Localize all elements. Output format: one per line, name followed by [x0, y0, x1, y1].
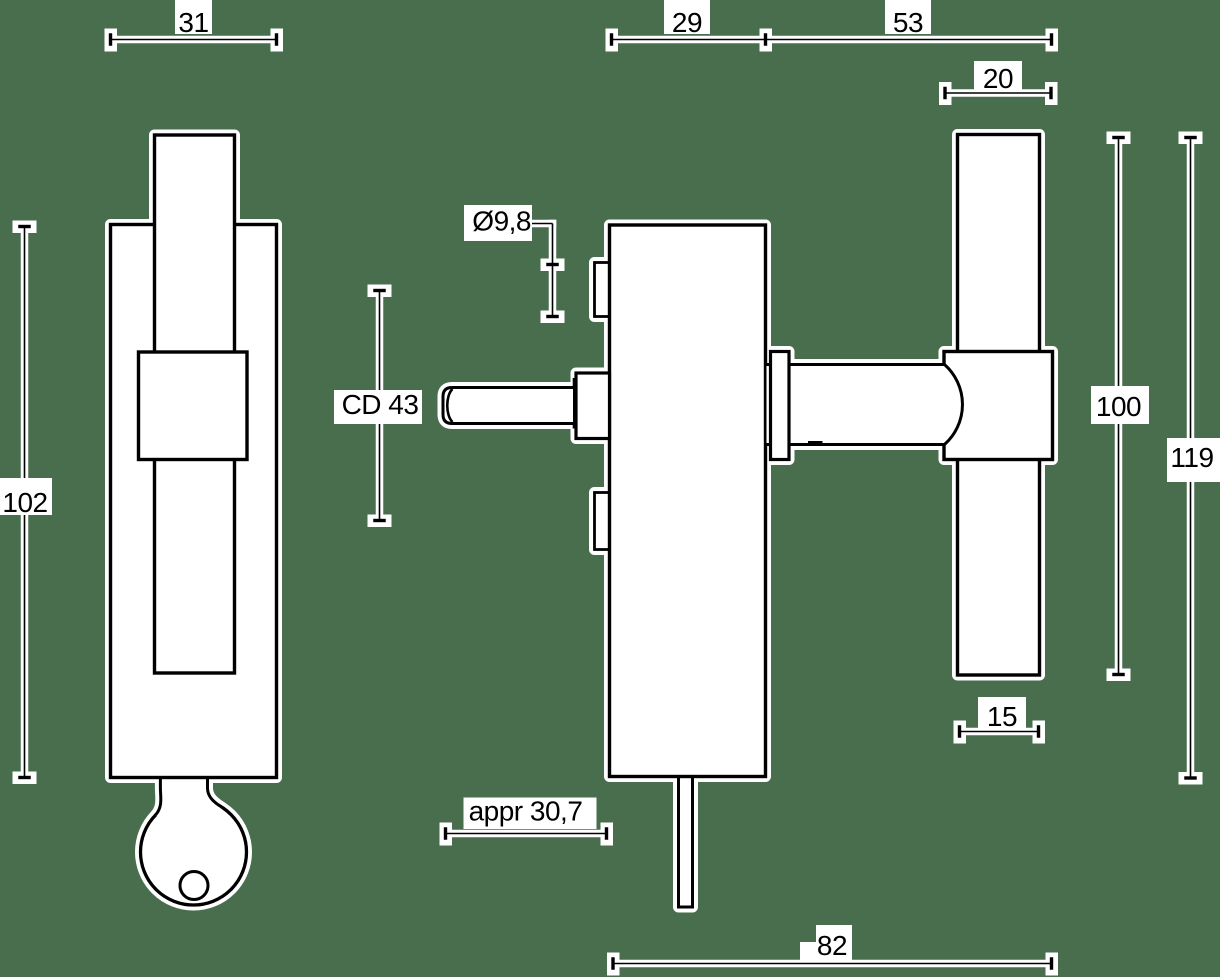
svg-text:119: 119	[1170, 442, 1213, 473]
svg-text:Ø9,8: Ø9,8	[472, 206, 531, 237]
svg-text:100: 100	[1096, 391, 1141, 422]
svg-text:82: 82	[817, 930, 847, 961]
svg-text:31: 31	[178, 7, 208, 38]
svg-text:53: 53	[893, 7, 923, 38]
svg-text:15: 15	[987, 701, 1017, 732]
svg-text:102: 102	[2, 487, 47, 518]
svg-text:appr 30,7: appr 30,7	[469, 796, 583, 827]
svg-text:20: 20	[983, 63, 1013, 94]
svg-text:CD 43: CD 43	[342, 389, 419, 420]
svg-text:29: 29	[672, 7, 702, 38]
